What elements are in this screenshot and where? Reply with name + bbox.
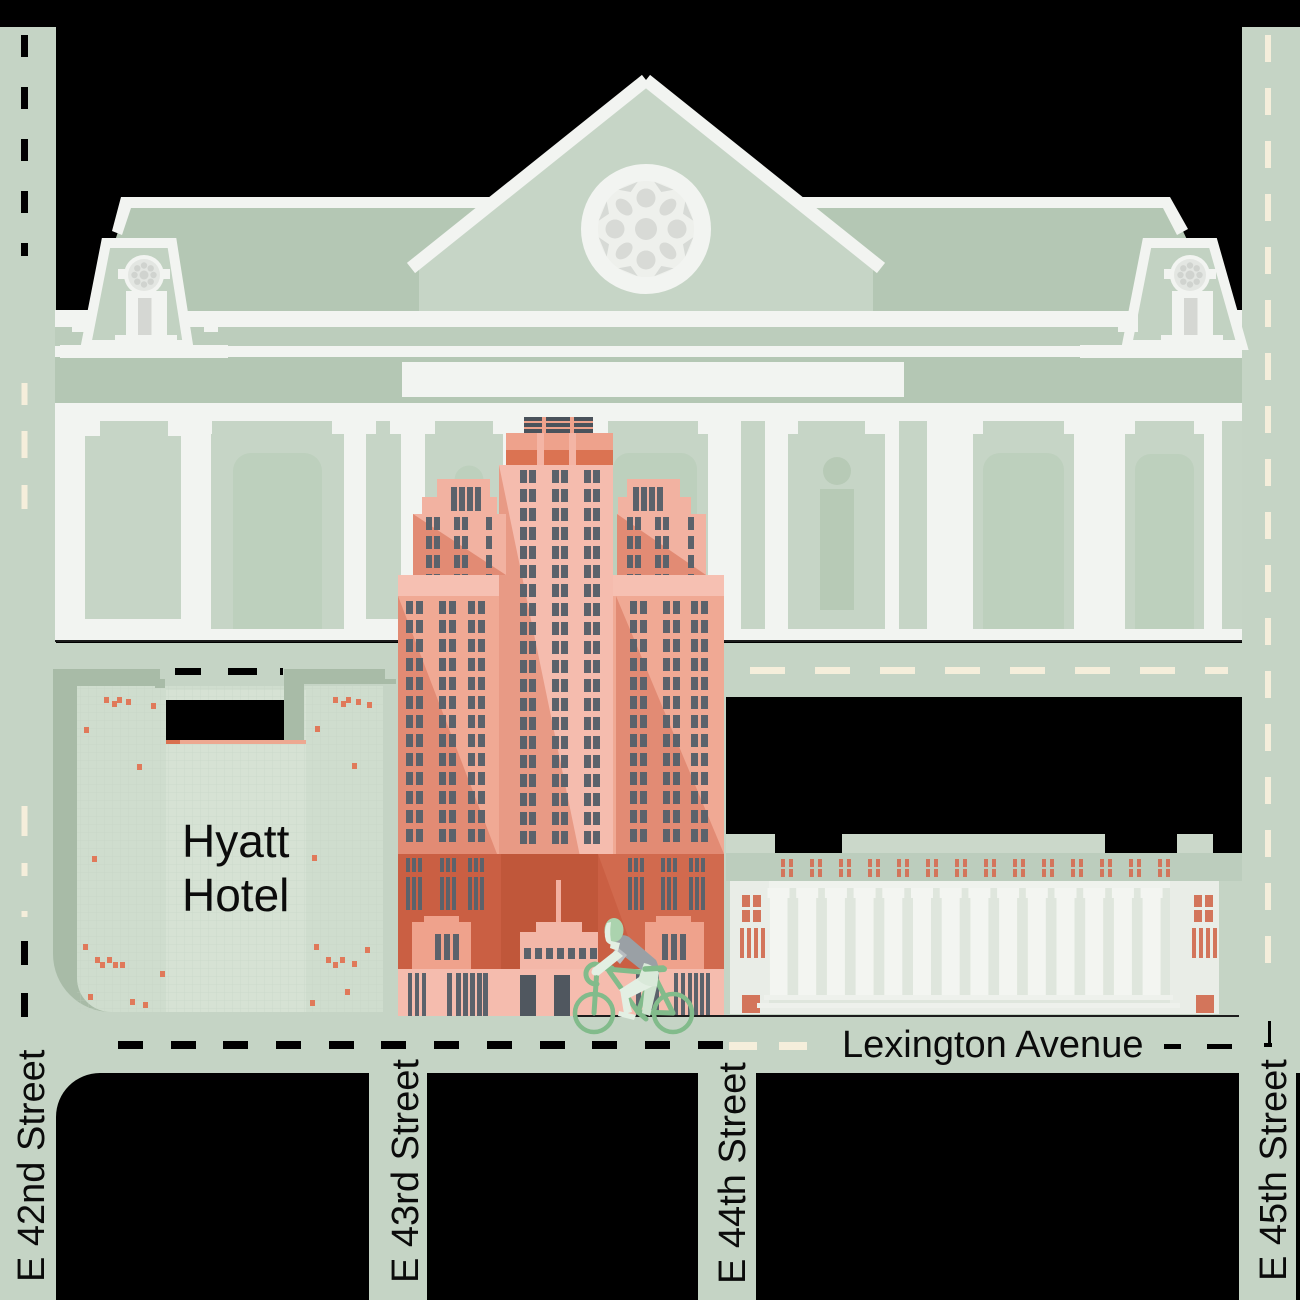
svg-text:E 44th Street: E 44th Street — [712, 1062, 754, 1284]
svg-text:E 45th Street: E 45th Street — [1253, 1059, 1295, 1281]
svg-text:E 42nd Street: E 42nd Street — [11, 1049, 53, 1282]
svg-text:Hyatt: Hyatt — [182, 815, 290, 867]
svg-text:Hotel: Hotel — [182, 869, 289, 921]
svg-text:Lexington Avenue: Lexington Avenue — [842, 1024, 1143, 1066]
svg-text:E 43rd Street: E 43rd Street — [385, 1059, 427, 1283]
